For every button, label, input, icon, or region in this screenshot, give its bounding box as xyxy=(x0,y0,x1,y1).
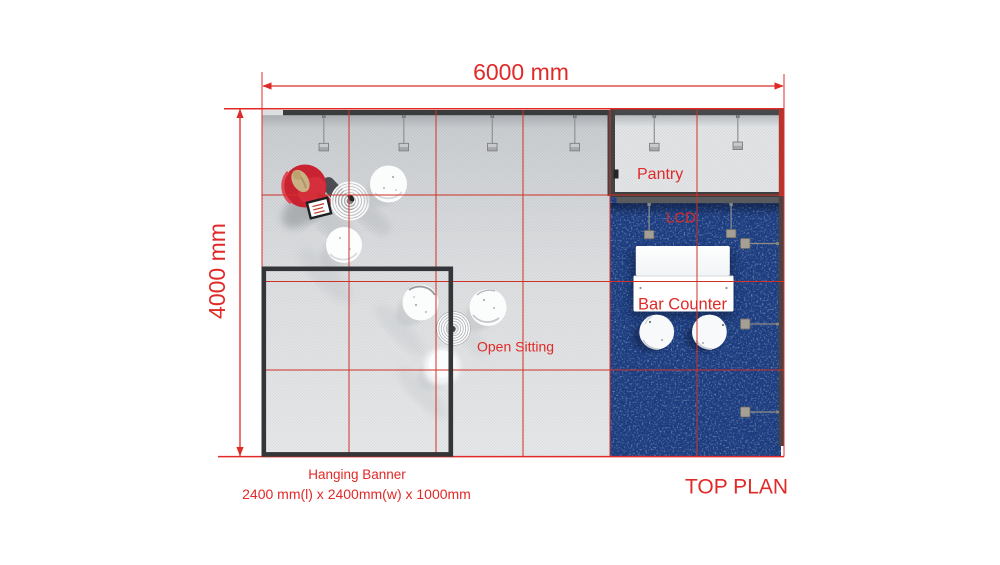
svg-text:Pantry: Pantry xyxy=(637,166,683,183)
svg-text:Bar Counter: Bar Counter xyxy=(638,296,727,314)
svg-text:Open Sitting: Open Sitting xyxy=(477,339,554,355)
svg-text:Hanging Banner: Hanging Banner xyxy=(308,467,406,482)
svg-text:TOP PLAN: TOP PLAN xyxy=(685,476,788,499)
svg-text:LCD: LCD xyxy=(666,210,696,227)
svg-text:6000 mm: 6000 mm xyxy=(473,59,569,85)
svg-text:2400 mm(l) x 2400mm(w) x 1000m: 2400 mm(l) x 2400mm(w) x 1000mm xyxy=(242,486,471,502)
svg-text:4000 mm: 4000 mm xyxy=(204,223,230,319)
